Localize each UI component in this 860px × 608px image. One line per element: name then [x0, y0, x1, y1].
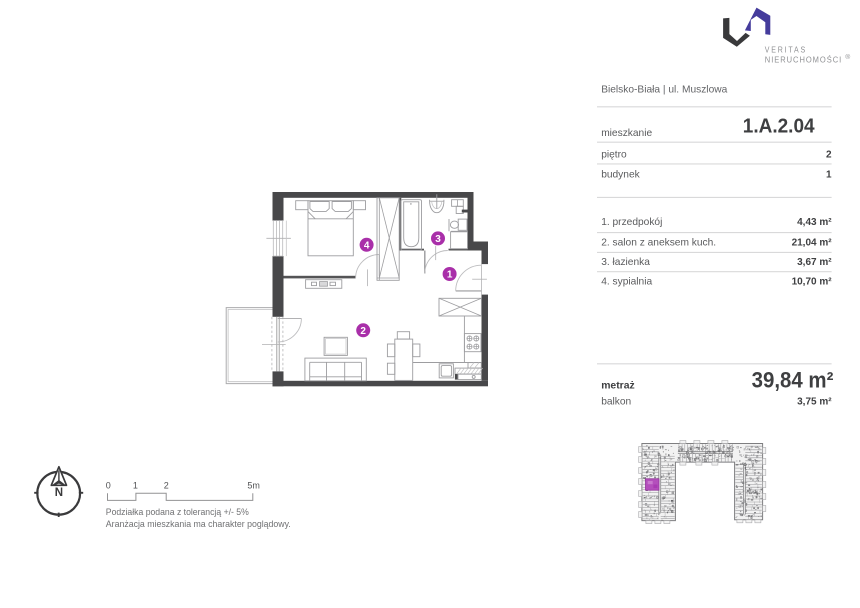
svg-text:0: 0 — [106, 481, 111, 491]
svg-text:2. salon z aneksem kuch.: 2. salon z aneksem kuch. — [601, 238, 716, 249]
svg-text:budynek: budynek — [601, 169, 640, 180]
svg-text:1: 1 — [826, 169, 832, 180]
svg-text:3. łazienka: 3. łazienka — [601, 257, 650, 268]
svg-text:3: 3 — [435, 234, 441, 245]
svg-text:metraż: metraż — [601, 381, 635, 392]
svg-text:3,67 m²: 3,67 m² — [797, 257, 832, 268]
svg-text:VERITAS: VERITAS — [765, 45, 807, 54]
svg-text:39,84 m²: 39,84 m² — [752, 368, 834, 393]
svg-text:4,43 m²: 4,43 m² — [797, 217, 832, 228]
svg-text:2: 2 — [360, 326, 366, 337]
svg-text:1: 1 — [133, 481, 138, 491]
svg-text:1: 1 — [447, 270, 453, 281]
svg-text:Aranżacja mieszkania ma charak: Aranżacja mieszkania ma charakter pogląd… — [106, 518, 291, 529]
svg-text:10,70 m²: 10,70 m² — [792, 277, 833, 288]
svg-text:balkon: balkon — [601, 396, 631, 407]
svg-text:2: 2 — [826, 150, 832, 161]
svg-text:4. sypialnia: 4. sypialnia — [601, 277, 652, 288]
svg-text:mieszkanie: mieszkanie — [601, 128, 652, 139]
svg-text:5m: 5m — [247, 481, 260, 491]
svg-text:2: 2 — [164, 481, 169, 491]
svg-text:Podziałka podana z tolerancją: Podziałka podana z tolerancją +/- 5% — [106, 506, 249, 517]
svg-text:NIERUCHOMOŚCI: NIERUCHOMOŚCI — [765, 56, 842, 65]
svg-text:N: N — [55, 487, 63, 499]
svg-text:piętro: piętro — [601, 150, 627, 161]
svg-text:Bielsko-Biała | ul. Muszlowa: Bielsko-Biała | ul. Muszlowa — [601, 85, 727, 96]
svg-text:3,75 m²: 3,75 m² — [797, 396, 832, 407]
svg-text:4: 4 — [364, 240, 370, 251]
svg-text:®: ® — [845, 53, 850, 61]
svg-text:1. przedpokój: 1. przedpokój — [601, 217, 662, 228]
svg-text:21,04 m²: 21,04 m² — [792, 238, 833, 249]
svg-text:1.A.2.04: 1.A.2.04 — [743, 115, 815, 137]
